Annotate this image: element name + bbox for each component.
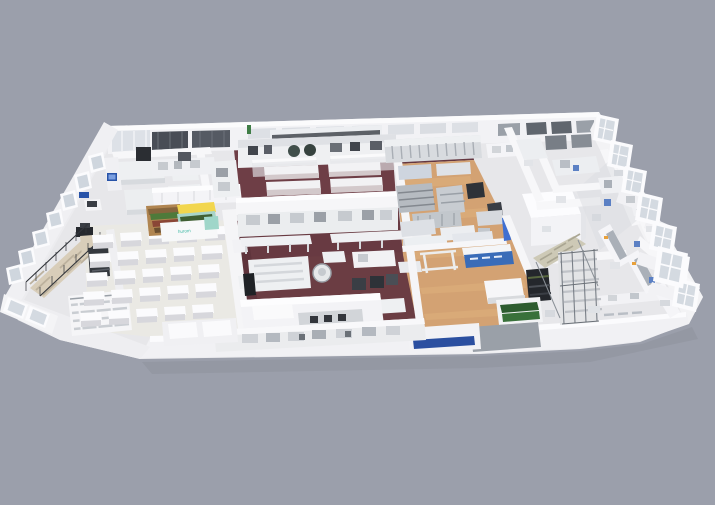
svg-text:hurom: hurom [178,228,191,234]
